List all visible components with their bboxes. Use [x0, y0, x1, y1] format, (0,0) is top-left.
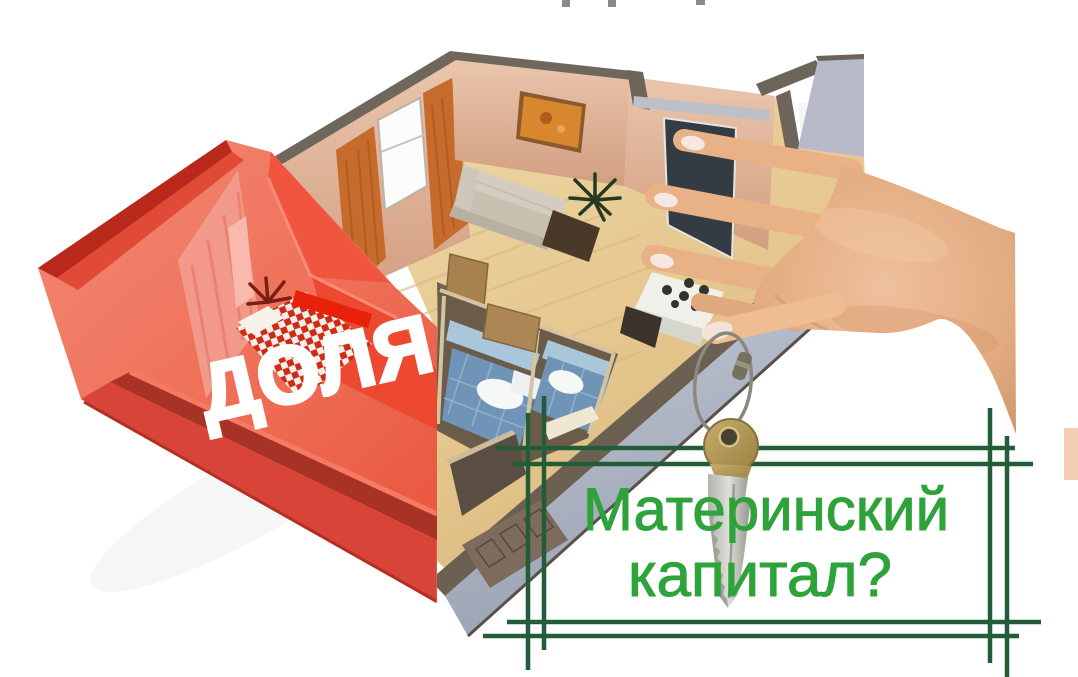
svg-text:Материнский: Материнский — [583, 476, 949, 543]
svg-text:капитал?: капитал? — [628, 541, 892, 610]
